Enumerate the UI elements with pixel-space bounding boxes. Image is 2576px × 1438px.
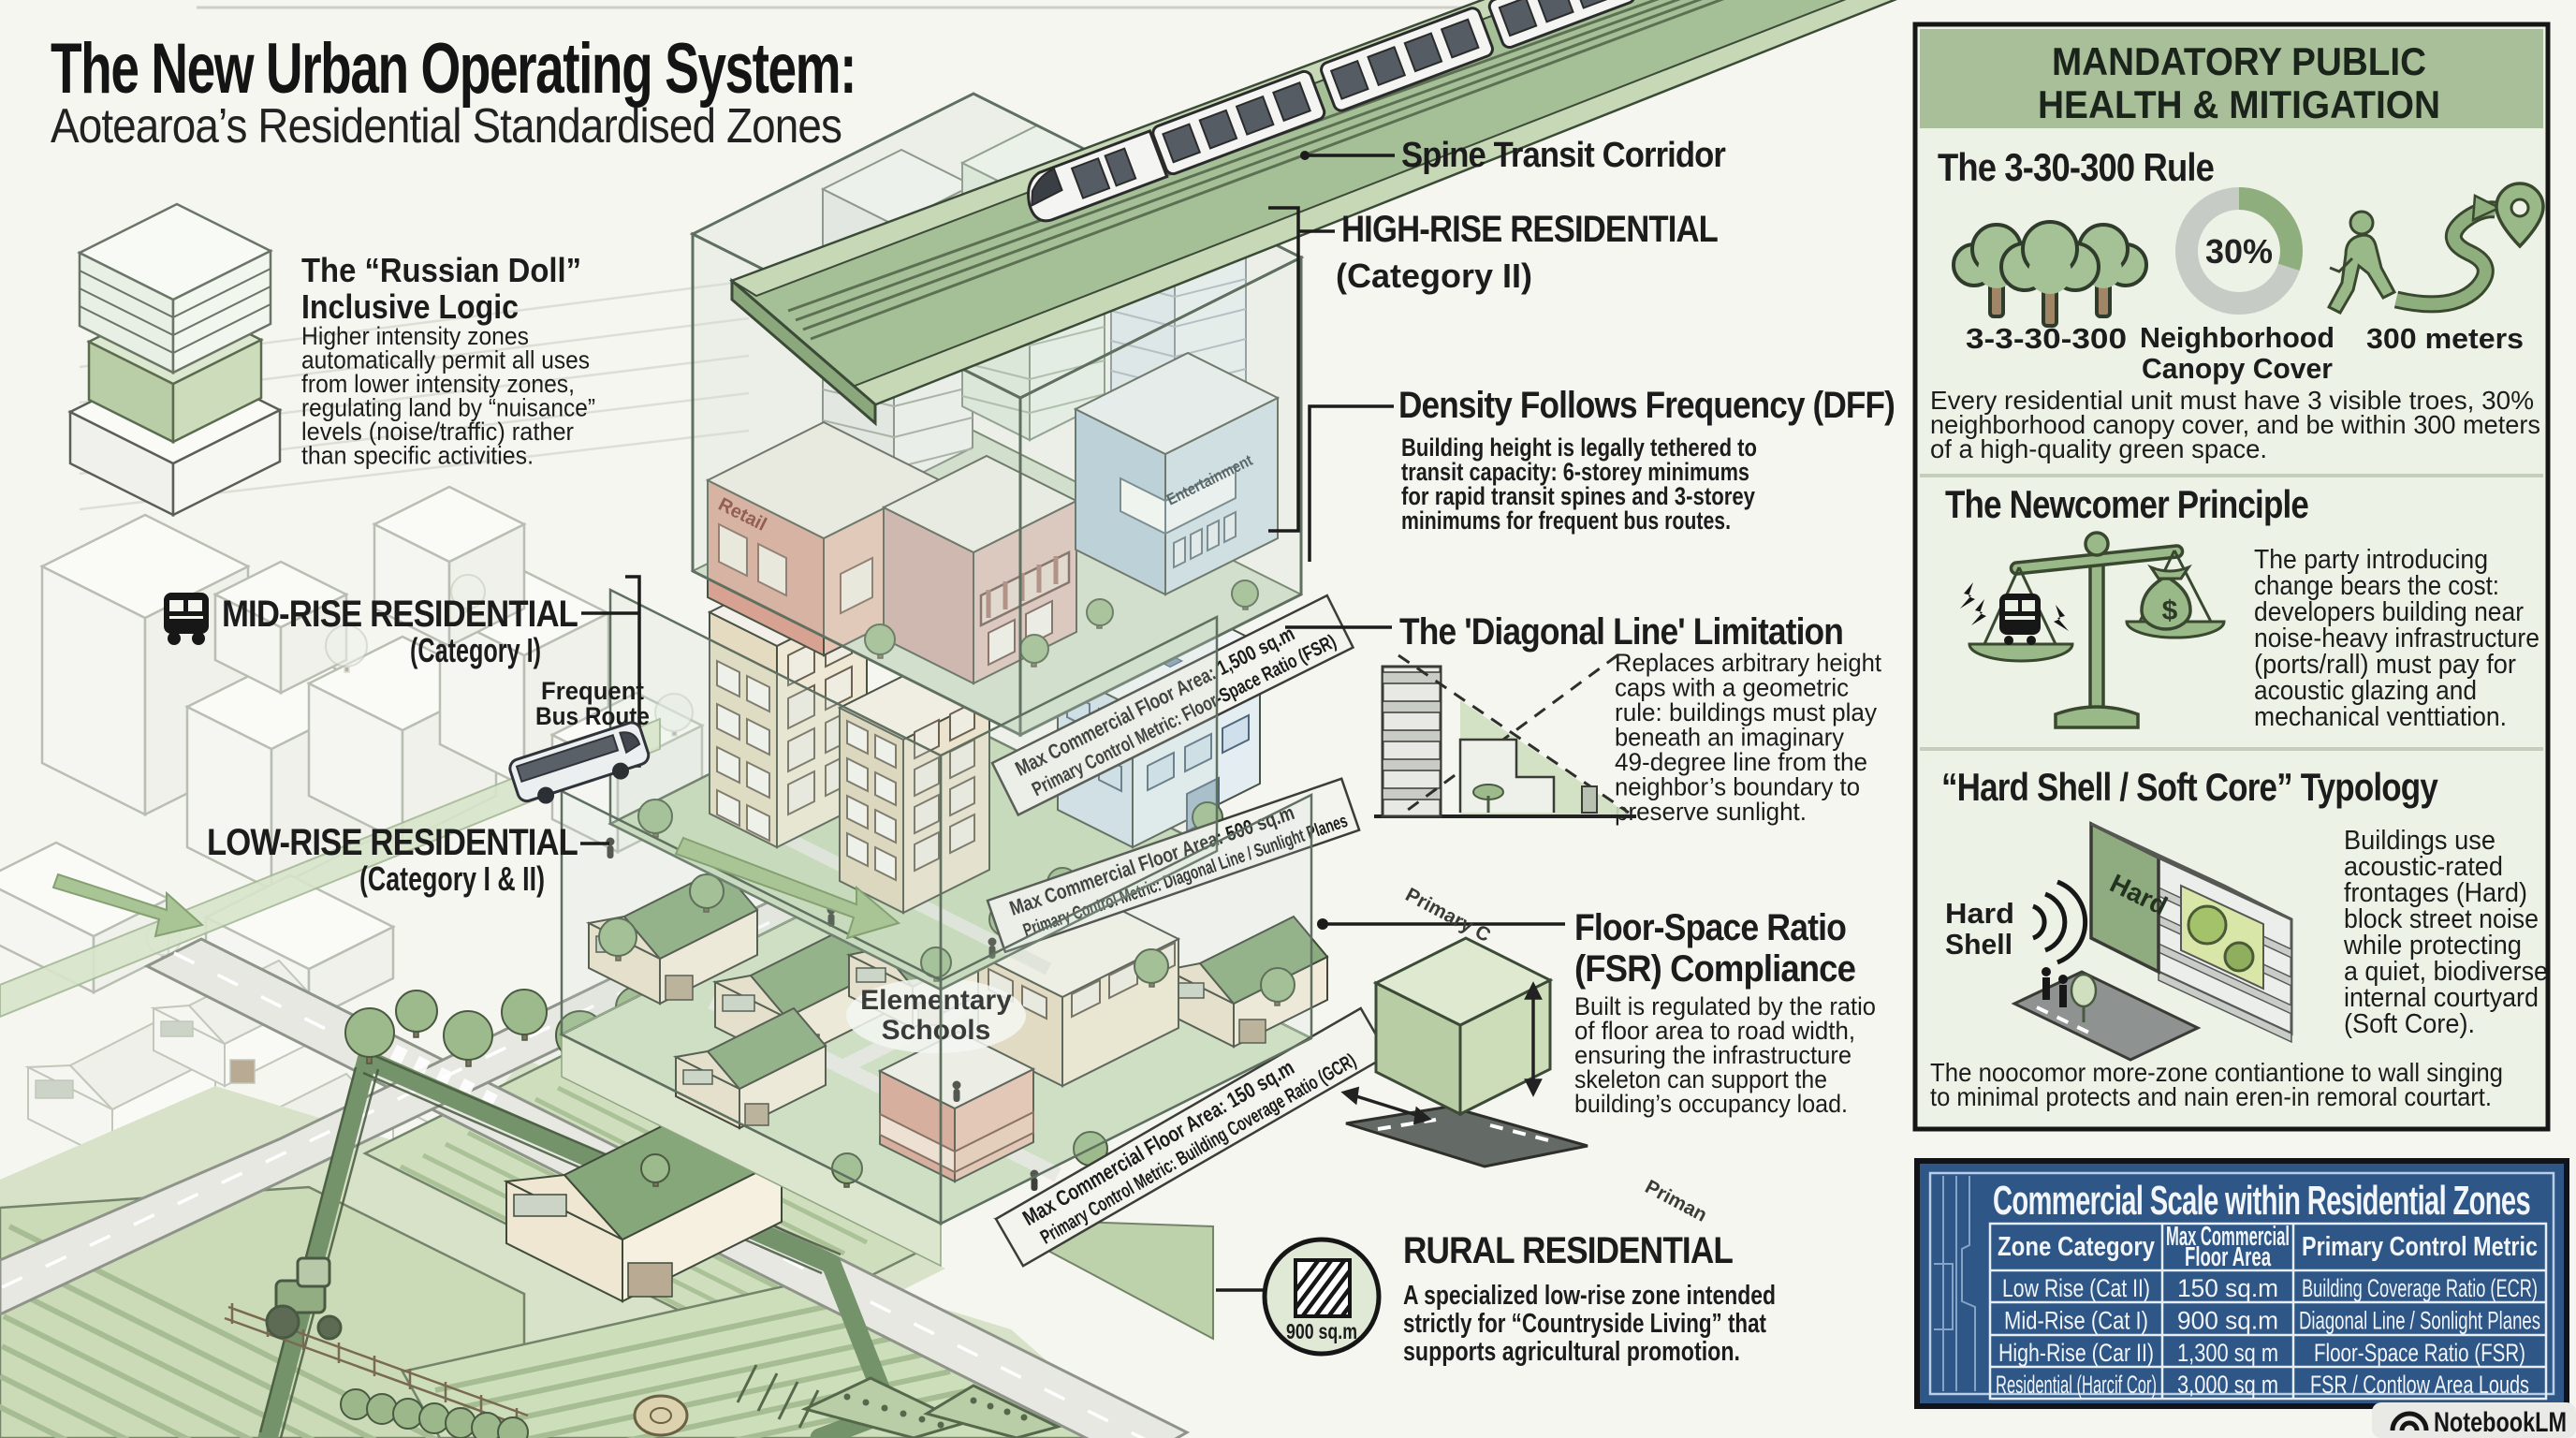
svg-text:FSR / Contlow Area Louds: FSR / Contlow Area Louds	[2310, 1371, 2529, 1399]
svg-text:rule: buildings must play: rule: buildings must play	[1615, 698, 1877, 726]
svg-text:mechanical venttiation.: mechanical venttiation.	[2254, 702, 2507, 732]
svg-text:Residential (Harcif Cor): Residential (Harcif Cor)	[1996, 1371, 2157, 1399]
svg-text:900 sq.m: 900 sq.m	[2177, 1306, 2278, 1334]
svg-text:caps with a geometric: caps with a geometric	[1615, 674, 1849, 702]
svg-text:Frequent: Frequent	[541, 677, 644, 705]
svg-text:The 'Diagonal Line' Limitation: The 'Diagonal Line' Limitation	[1399, 611, 1843, 653]
svg-text:supports agricultural promotio: supports agricultural promotion.	[1403, 1337, 1740, 1367]
svg-text:Replaces arbitrary height: Replaces arbitrary height	[1615, 649, 1881, 677]
svg-text:1,300 sq m: 1,300 sq m	[2177, 1339, 2278, 1367]
svg-text:3-3-30-300: 3-3-30-300	[1966, 322, 2127, 355]
svg-text:LOW-RISE RESIDENTIAL: LOW-RISE RESIDENTIAL	[207, 822, 578, 863]
svg-text:The New Urban Operating System: The New Urban Operating System:	[51, 29, 856, 109]
svg-text:Hard: Hard	[1945, 897, 2014, 930]
svg-text:“Hard Shell / Soft Core” Typol: “Hard Shell / Soft Core” Typology	[1941, 765, 2438, 809]
svg-text:Canopy Cover: Canopy Cover	[2142, 352, 2333, 385]
svg-text:Aotearoa’s Residential Standar: Aotearoa’s Residential Standardised Zone…	[51, 99, 842, 154]
svg-text:Low Rise (Cat II): Low Rise (Cat II)	[2002, 1274, 2150, 1302]
svg-text:(Category I): (Category I)	[410, 631, 541, 669]
svg-text:300 meters: 300 meters	[2366, 322, 2524, 355]
svg-text:3,000 sq m: 3,000 sq m	[2177, 1371, 2278, 1399]
svg-text:(Soft Core).: (Soft Core).	[2344, 1009, 2475, 1039]
svg-text:49-degree line from the: 49-degree line from the	[1615, 748, 1867, 776]
svg-text:Zone Category: Zone Category	[1998, 1232, 2155, 1262]
svg-text:Building Coverage Ratio (ECR): Building Coverage Ratio (ECR)	[2302, 1274, 2538, 1302]
svg-text:Neighborhood: Neighborhood	[2140, 321, 2334, 354]
svg-text:MANDATORY PUBLIC: MANDATORY PUBLIC	[2052, 39, 2426, 83]
svg-text:minimums for frequent bus rout: minimums for frequent bus routes.	[1401, 506, 1731, 535]
svg-text:900 sq.m: 900 sq.m	[1286, 1319, 1357, 1343]
svg-text:(Category II): (Category II)	[1336, 257, 1532, 295]
svg-text:than specific activities.: than specific activities.	[301, 442, 534, 470]
svg-text:building’s occupancy load.: building’s occupancy load.	[1574, 1090, 1848, 1118]
svg-text:(Category I & II): (Category I & II)	[359, 859, 545, 898]
svg-text:Floor-Space Ratio: Floor-Space Ratio	[1574, 907, 1846, 948]
svg-text:HEALTH & MITIGATION: HEALTH & MITIGATION	[2038, 82, 2440, 126]
svg-text:Floor Area: Floor Area	[2185, 1242, 2272, 1272]
svg-text:Diagonal Line / Sonlight Plane: Diagonal Line / Sonlight Planes	[2299, 1306, 2540, 1334]
svg-text:Floor-Space Ratio (FSR): Floor-Space Ratio (FSR)	[2314, 1339, 2525, 1367]
svg-text:The “Russian Doll”: The “Russian Doll”	[301, 251, 581, 289]
svg-text:MID-RISE RESIDENTIAL: MID-RISE RESIDENTIAL	[222, 594, 578, 635]
svg-text:beneath an imaginary: beneath an imaginary	[1615, 724, 1844, 752]
svg-text:Density Follows Frequency (DFF: Density Follows Frequency (DFF)	[1398, 385, 1895, 426]
svg-text:Shell: Shell	[1945, 928, 2012, 961]
svg-text:NotebookLM: NotebookLM	[2434, 1407, 2567, 1438]
svg-text:of a high-quality green space.: of a high-quality green space.	[1930, 434, 2267, 463]
svg-text:preserve sunlight.: preserve sunlight.	[1615, 798, 1807, 826]
svg-text:30%: 30%	[2205, 232, 2273, 271]
svg-text:Mid-Rise (Cat I): Mid-Rise (Cat I)	[2004, 1306, 2148, 1334]
svg-text:strictly for “Countryside Livi: strictly for “Countryside Living” that	[1403, 1309, 1766, 1339]
svg-text:Primary Control Metric: Primary Control Metric	[2302, 1232, 2538, 1262]
svg-text:HIGH-RISE RESIDENTIAL: HIGH-RISE RESIDENTIAL	[1341, 209, 1718, 250]
svg-text:The Newcomer Principle: The Newcomer Principle	[1945, 482, 2308, 526]
svg-text:Inclusive Logic: Inclusive Logic	[301, 287, 519, 326]
svg-text:neighbor’s boundary to: neighbor’s boundary to	[1615, 773, 1860, 801]
svg-text:$: $	[2162, 595, 2178, 626]
svg-text:RURAL RESIDENTIAL: RURAL RESIDENTIAL	[1403, 1230, 1733, 1271]
svg-text:Commercial Scale within Reside: Commercial Scale within Residential Zone…	[1993, 1178, 2530, 1224]
svg-text:The 3-30-300 Rule: The 3-30-300 Rule	[1938, 145, 2214, 189]
svg-text:High-Rise (Car II): High-Rise (Car II)	[1998, 1339, 2154, 1367]
svg-text:Spine Transit Corridor: Spine Transit Corridor	[1401, 136, 1726, 175]
svg-text:to minimal protects and nain e: to minimal protects and nain eren-in rem…	[1930, 1082, 2492, 1111]
svg-text:A specialized low-rise zone in: A specialized low-rise zone intended	[1403, 1281, 1776, 1311]
svg-text:150 sq.m: 150 sq.m	[2177, 1274, 2278, 1302]
svg-text:(FSR) Compliance: (FSR) Compliance	[1574, 948, 1855, 990]
